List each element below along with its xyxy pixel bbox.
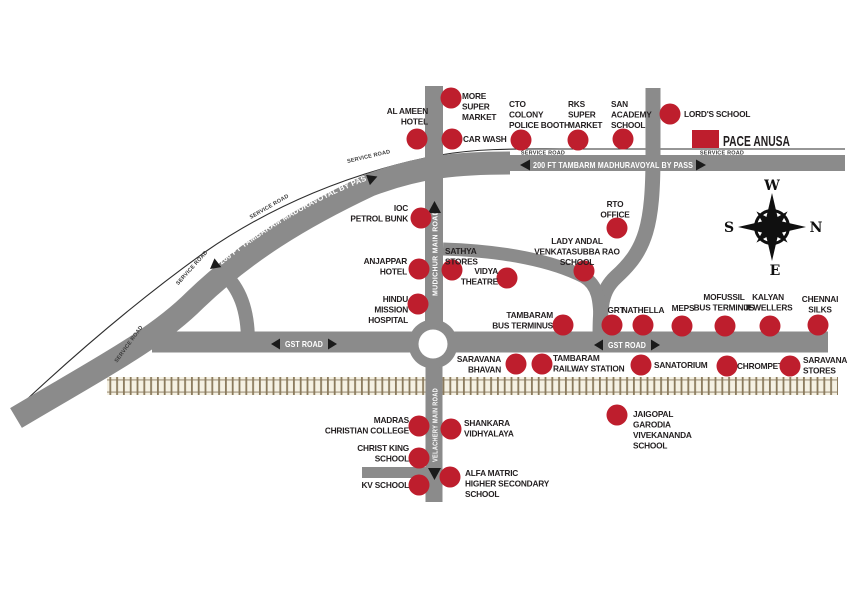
landmark-dot-hindu-mission-hospital — [408, 294, 429, 315]
landmark-rks-super-market: RKSSUPERMARKET — [568, 99, 603, 151]
landmark-label-tambaram-railway-station: TAMBARAMRAILWAY STATION — [553, 353, 625, 374]
gst-road-label-west: GST ROAD — [285, 339, 323, 349]
landmark-label-vidya-theatre: VIDYATHEATRE — [461, 266, 499, 287]
compass-letter-left: S — [724, 220, 734, 236]
landmark-dot-kv-school — [409, 475, 430, 496]
landmark-label-kv-school: KV SCHOOL — [361, 480, 409, 490]
landmark-dot-chennai-silks — [808, 315, 829, 336]
landmark-label-alfa-matric-higher-secondary-school: ALFA MATRICHIGHER SECONDARYSCHOOL — [465, 468, 550, 499]
landmark-christ-king-school: CHRIST KINGSCHOOL — [357, 443, 429, 469]
landmark-meps: MEPS — [672, 303, 696, 337]
landmark-more-super-market: MORESUPERMARKET — [441, 88, 497, 123]
project-name: PACE ANUSA — [723, 133, 790, 150]
compass-rose: W N S E — [724, 178, 823, 279]
project-marker-rect — [692, 130, 719, 148]
landmark-label-al-ameen-hotel: AL AMEENHOTEL — [387, 106, 428, 127]
landmark-label-chrompet: CHROMPET — [737, 361, 783, 371]
landmark-dot-meps — [672, 316, 693, 337]
compass-letter-top: W — [763, 178, 780, 194]
landmark-dot-mofussil-bus-terminus — [715, 316, 736, 337]
landmark-dot-car-wash — [442, 129, 463, 150]
landmark-kalyan-jewellers: KALYANJEWELLERS — [744, 292, 794, 337]
landmark-label-rks-super-market: RKSSUPERMARKET — [568, 99, 602, 130]
landmark-hindu-mission-hospital: HINDUMISSIONHOSPITAL — [368, 294, 428, 326]
landmark-label-christ-king-school: CHRIST KINGSCHOOL — [357, 443, 409, 464]
service-road-label-6: SERVICE ROAD — [700, 151, 744, 157]
location-map: 200 FT TAMBARM MADHURAVOYAL BY PASS 200 … — [0, 0, 850, 600]
landmark-dot-alfa-matric-higher-secondary-school — [440, 467, 461, 488]
service-road-label-5: SERVICE ROAD — [521, 151, 565, 157]
landmark-label-shankara-vidhyalaya: SHANKARAVIDHYALAYA — [464, 418, 514, 439]
landmark-dot-sanatorium — [631, 355, 652, 376]
landmark-label-rto-office: RTOOFFICE — [600, 199, 630, 220]
landmark-label-tambaram-bus-terminus: TAMBARAMBUS TERMINUS — [492, 310, 553, 331]
landmark-dot-jaigopal-garodia-vivekananda-school — [607, 405, 628, 426]
landmark-dot-anjappar-hotel — [409, 259, 430, 280]
landmark-nathella: NATHELLA — [622, 305, 665, 336]
landmark-saravana-bhavan: SARAVANABHAVAN — [457, 354, 527, 375]
landmark-dot-grt — [602, 315, 623, 336]
landmark-dot-saravana-bhavan — [506, 354, 527, 375]
landmark-dot-christ-king-school — [409, 448, 430, 469]
landmark-label-chennai-silks: CHENNAISILKS — [802, 294, 838, 315]
velachery-road-label: VELACHERY MAIN ROAD — [431, 388, 440, 462]
landmark-label-hindu-mission-hospital: HINDUMISSIONHOSPITAL — [368, 294, 408, 325]
landmark-label-kalyan-jewellers: KALYANJEWELLERS — [744, 292, 794, 313]
landmark-jaigopal-garodia-vivekananda-school: JAIGOPALGARODIAVIVEKANANDASCHOOL — [607, 405, 692, 451]
landmark-label-saravana-bhavan: SARAVANABHAVAN — [457, 354, 501, 375]
landmark-dot-al-ameen-hotel — [407, 129, 428, 150]
landmark-label-lords-school: LORD'S SCHOOL — [684, 109, 750, 119]
map-canvas: 200 FT TAMBARM MADHURAVOYAL BY PASS 200 … — [0, 0, 850, 600]
landmark-dot-vidya-theatre — [497, 268, 518, 289]
landmark-saravana-stores: SARAVANASTORES — [780, 355, 848, 377]
landmark-dot-shankara-vidhyalaya — [441, 419, 462, 440]
landmark-dot-madras-christian-college — [409, 416, 430, 437]
landmark-chennai-silks: CHENNAISILKS — [802, 294, 838, 336]
railway-track — [107, 377, 838, 395]
landmark-dot-rto-office — [607, 218, 628, 239]
landmark-dot-kalyan-jewellers — [760, 316, 781, 337]
landmark-label-madras-christian-college: MADRASCHRISTIAN COLLEGE — [325, 415, 410, 436]
landmark-sathya-stores: SATHYASTORES — [442, 246, 479, 281]
landmark-mofussil-bus-terminus: MOFUSSILBUS TERMINUS — [694, 292, 755, 337]
gst-road-label-east: GST ROAD — [608, 340, 646, 350]
landmark-label-sanatorium: SANATORIUM — [654, 360, 708, 370]
compass-letter-right: N — [810, 220, 823, 236]
landmark-label-sathya-stores: SATHYASTORES — [445, 246, 478, 267]
landmark-label-nathella: NATHELLA — [622, 305, 665, 315]
roundabout-inner — [419, 330, 448, 359]
landmark-label-ioc-petrol-bunk: IOCPETROL BUNK — [350, 203, 408, 224]
landmark-madras-christian-college: MADRASCHRISTIAN COLLEGE — [325, 415, 430, 437]
landmark-cto-colony-police-booth: CTOCOLONYPOLICE BOOTH — [509, 99, 570, 151]
landmark-lords-school: LORD'S SCHOOL — [660, 104, 751, 125]
landmark-label-car-wash: CAR WASH — [463, 134, 507, 144]
landmark-dot-cto-colony-police-booth — [511, 130, 532, 151]
landmark-dot-chrompet — [717, 356, 738, 377]
landmark-vidya-theatre: VIDYATHEATRE — [461, 266, 518, 289]
landmark-ioc-petrol-bunk: IOCPETROL BUNK — [350, 203, 431, 229]
landmark-shankara-vidhyalaya: SHANKARAVIDHYALAYA — [441, 418, 514, 440]
project-marker: PACE ANUSA — [692, 130, 790, 150]
landmark-car-wash: CAR WASH — [442, 129, 507, 150]
landmark-label-anjappar-hotel: ANJAPPARHOTEL — [364, 256, 408, 277]
landmark-tambaram-railway-station: TAMBARAMRAILWAY STATION — [532, 353, 625, 375]
landmark-label-meps: MEPS — [672, 303, 695, 313]
landmark-rto-office: RTOOFFICE — [600, 199, 630, 239]
landmark-dot-san-academy-school — [613, 129, 634, 150]
bypass-top-label: 200 FT TAMBARM MADHURAVOYAL BY PASS — [533, 160, 693, 170]
landmark-dot-tambaram-railway-station — [532, 354, 553, 375]
compass-letter-bottom: E — [770, 263, 781, 279]
landmark-anjappar-hotel: ANJAPPARHOTEL — [364, 256, 430, 280]
landmark-dot-nathella — [633, 315, 654, 336]
landmark-dot-ioc-petrol-bunk — [411, 208, 432, 229]
compass-main-star-icon — [738, 193, 806, 261]
service-road-label-1: SERVICE ROAD — [347, 149, 391, 165]
landmark-sanatorium: SANATORIUM — [631, 355, 708, 376]
landmark-label-jaigopal-garodia-vivekananda-school: JAIGOPALGARODIAVIVEKANANDASCHOOL — [633, 409, 692, 451]
landmark-label-saravana-stores: SARAVANASTORES — [803, 355, 847, 376]
landmark-dot-rks-super-market — [568, 130, 589, 151]
landmark-al-ameen-hotel: AL AMEENHOTEL — [387, 106, 428, 150]
mudichur-road-label: MUDICHUR MAIN ROAD — [431, 210, 440, 296]
landmark-chrompet: CHROMPET — [717, 356, 784, 377]
road-labels-layer: 200 FT TAMBARM MADHURAVOYAL BY PASS 200 … — [0, 0, 744, 480]
landmark-alfa-matric-higher-secondary-school: ALFA MATRICHIGHER SECONDARYSCHOOL — [440, 467, 550, 500]
landmark-label-more-super-market: MORESUPERMARKET — [462, 91, 496, 122]
landmark-dot-saravana-stores — [780, 356, 801, 377]
landmark-dot-more-super-market — [441, 88, 462, 109]
landmark-dot-tambaram-bus-terminus — [553, 315, 574, 336]
landmark-dot-lords-school — [660, 104, 681, 125]
landmark-label-cto-colony-police-booth: CTOCOLONYPOLICE BOOTH — [509, 99, 570, 130]
